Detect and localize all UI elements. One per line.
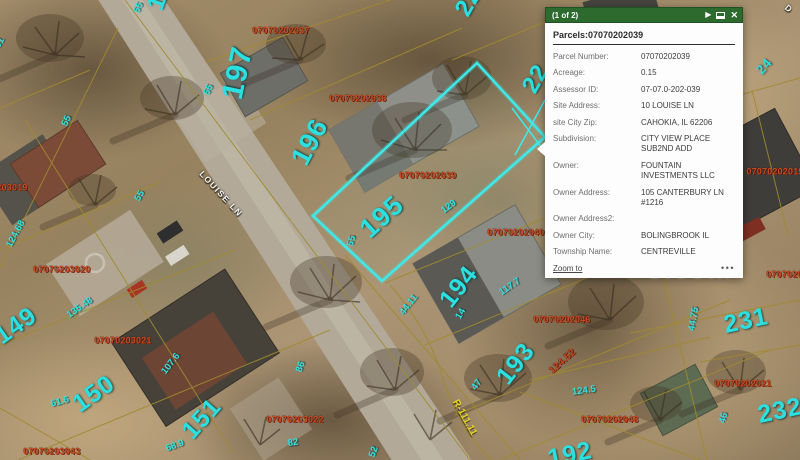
field-row: Subdivision:CITY VIEW PLACE SUB2ND ADD	[553, 134, 735, 155]
next-result-icon[interactable]: ▶	[705, 11, 711, 19]
field-row: Parcel Number:07070202039	[553, 52, 735, 62]
popup-body: Parcels:07070202039 Parcel Number:070702…	[545, 23, 743, 278]
popup-header: (1 of 2) ▶ ✕	[545, 7, 743, 23]
field-row: site City Zip:CAHOKIA, IL 62206	[553, 118, 735, 128]
popup-footer: Zoom to •••	[553, 263, 735, 273]
map-canvas[interactable]: 197 196 195 194 193 192 149 150 151 231 …	[0, 0, 800, 460]
field-row: Owner Address:105 CANTERBURY LN #1216	[553, 188, 735, 209]
popup-divider	[553, 44, 735, 45]
popup-title: Parcels:07070202039	[553, 30, 735, 40]
field-row: Acreage:0.15	[553, 68, 735, 78]
identify-popup: (1 of 2) ▶ ✕ Parcels:07070202039 Parcel …	[545, 7, 743, 278]
dock-icon[interactable]	[716, 12, 725, 19]
field-row: Assessor ID:07-07.0-202-039	[553, 85, 735, 95]
field-row: Township Name:CENTREVILLE	[553, 247, 735, 257]
field-row: Owner Address2:	[553, 214, 735, 224]
field-row: Owner City:BOLINGBROOK IL	[553, 231, 735, 241]
close-icon[interactable]: ✕	[730, 11, 738, 19]
popup-caret	[537, 141, 546, 157]
more-options-icon[interactable]: •••	[721, 263, 735, 273]
popup-result-count: (1 of 2)	[552, 11, 700, 20]
field-row: Owner:FOUNTAIN INVESTMENTS LLC	[553, 161, 735, 182]
field-row: Site Address:10 LOUISE LN	[553, 101, 735, 111]
zoom-to-link[interactable]: Zoom to	[553, 264, 582, 273]
